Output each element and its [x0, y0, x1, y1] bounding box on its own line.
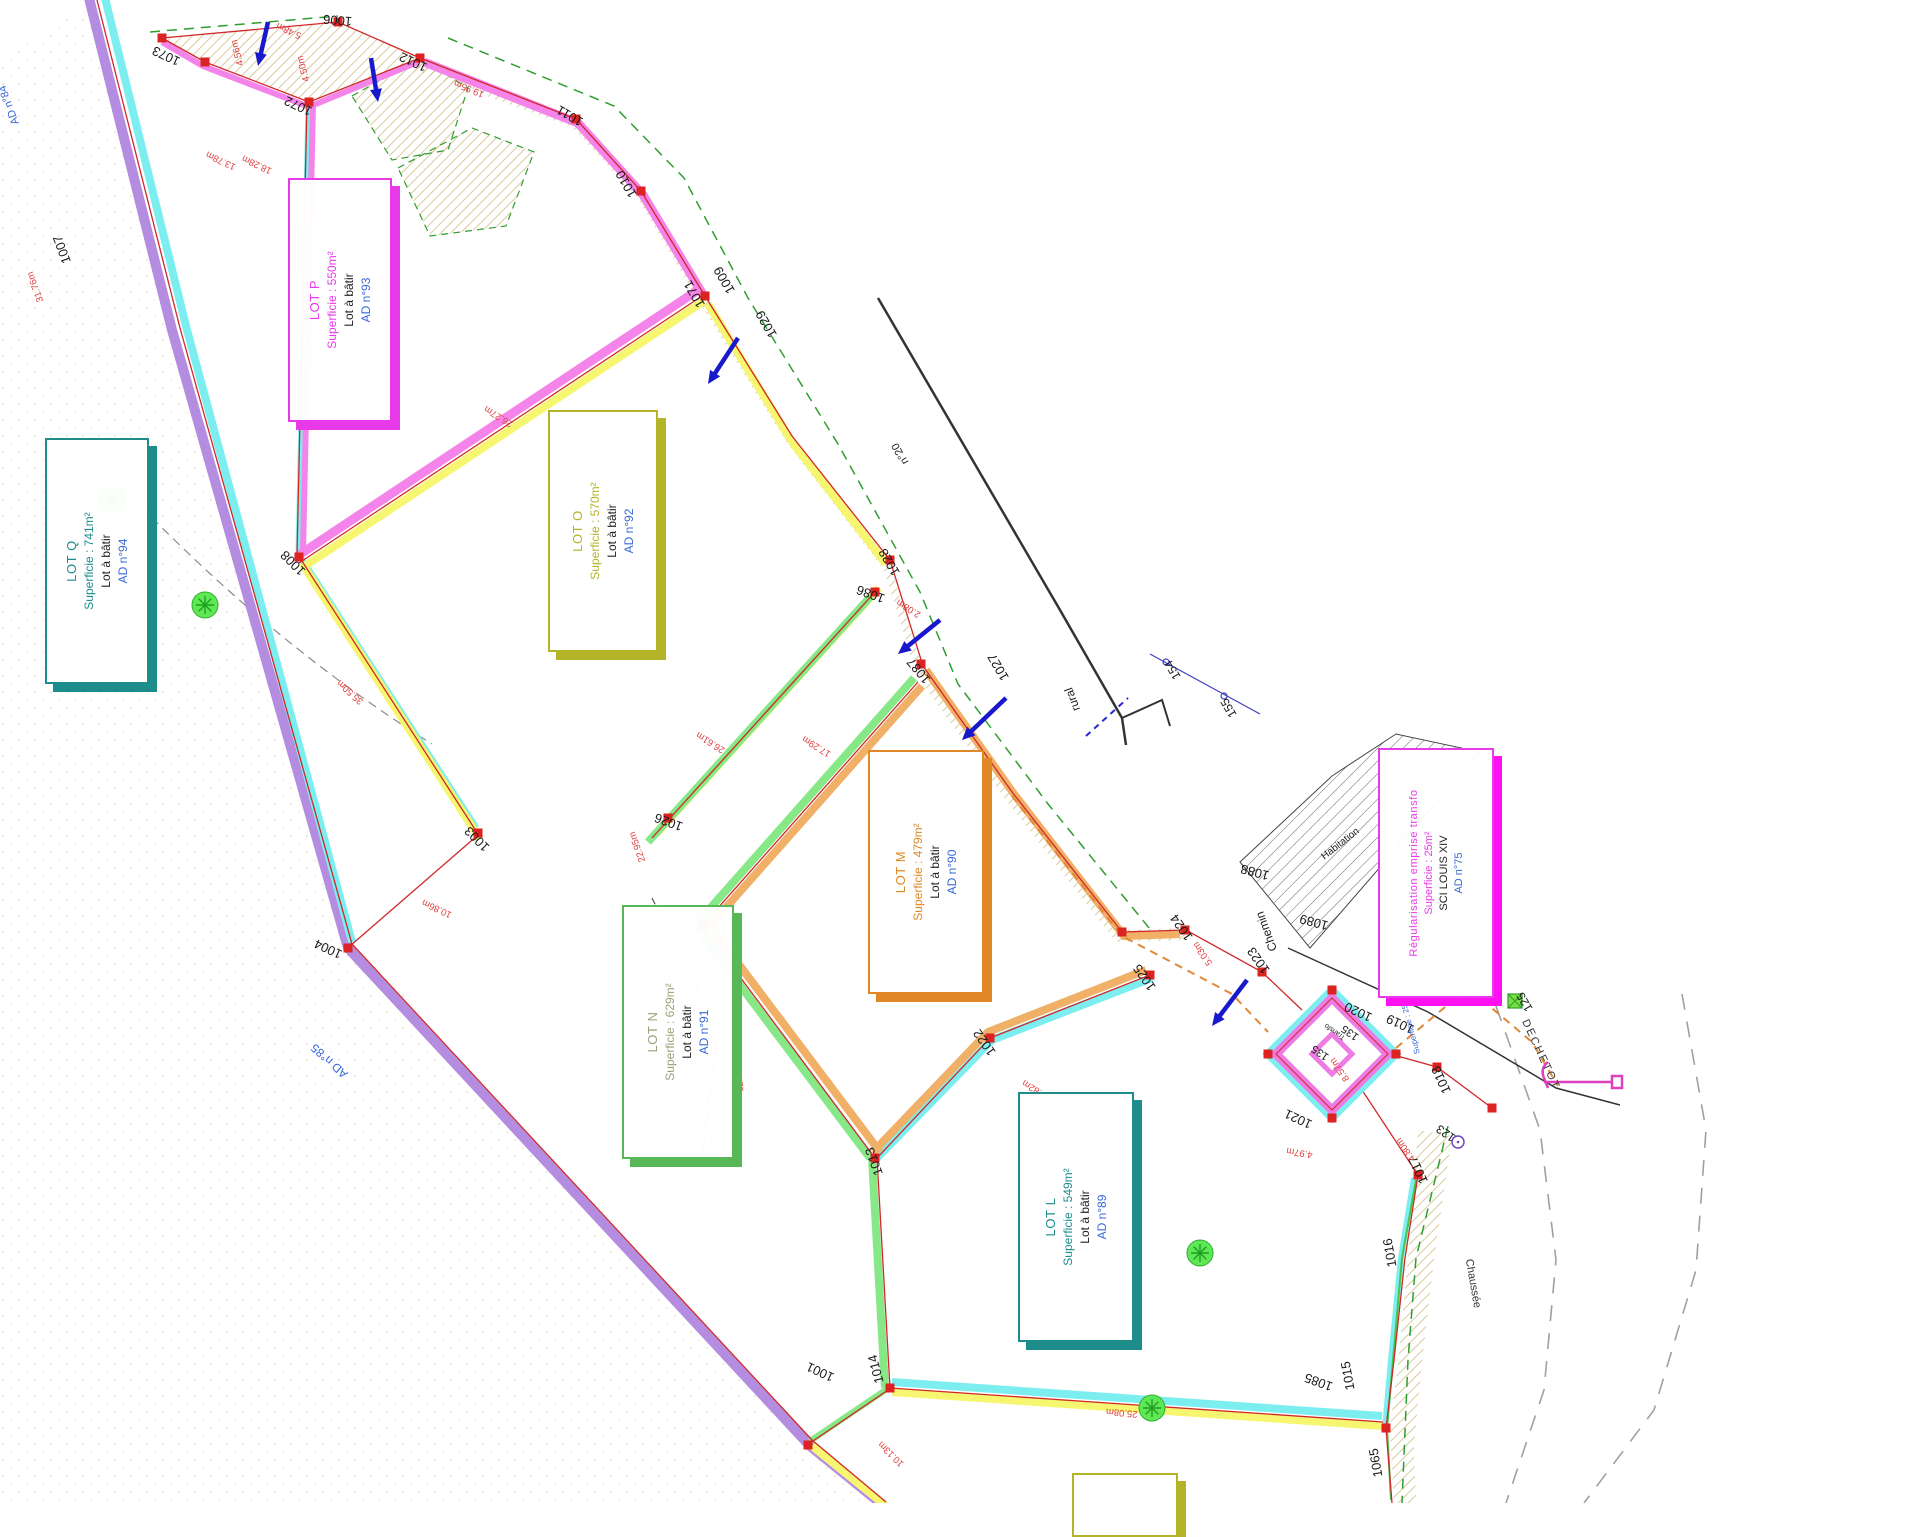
parcel-number-label: 125	[1513, 990, 1535, 1015]
lot-note: Lot à bâtir	[342, 273, 356, 326]
parcel-number-label: 1001	[804, 1359, 837, 1385]
lot-title: LOT P	[307, 280, 322, 320]
lot-superficie: Superficie : 629m²	[663, 983, 677, 1080]
lot-ref: AD n°89	[1095, 1195, 1109, 1240]
transfo-line3: SCI LOUIS XIV	[1438, 835, 1450, 910]
dimension-label: 4.97m	[1286, 1145, 1314, 1160]
lot-superficie: Superficie : 479m²	[911, 823, 925, 920]
corner-marker	[804, 1441, 813, 1450]
lot-p-label-box: LOT P Superficie : 550m² Lot à bâtir AD …	[288, 178, 392, 422]
flow-arrow-icon	[1217, 980, 1247, 1020]
dimension-label: 12.78m	[733, 1060, 747, 1093]
parcel-number-label: 1027	[984, 651, 1011, 684]
corner-marker	[1328, 986, 1337, 995]
lot-title: LOT Q	[64, 540, 79, 582]
flow-arrow-icon	[968, 698, 1006, 734]
parcel-number-label: 1016	[1380, 1237, 1400, 1268]
parcel-number-label: 154	[1161, 658, 1183, 683]
corner-marker	[1328, 1114, 1337, 1123]
dimension-label: 10.86m	[420, 897, 453, 920]
transfo-line2: Superficie : 25m²	[1423, 831, 1435, 914]
parcel-number-label: 1021	[1282, 1106, 1315, 1132]
parcel-number-label: 1085	[1302, 1370, 1334, 1394]
tree-icon	[1139, 1395, 1165, 1421]
parcel-number-label: 1018	[1428, 1064, 1454, 1097]
dimension-label: 18.28m	[240, 153, 273, 176]
corner-marker	[344, 944, 353, 953]
lot-m-label-box: LOT M Superficie : 479m² Lot à bâtir AD …	[868, 750, 984, 994]
context-label: DECHETOT	[1519, 1018, 1562, 1092]
dimension-label: 22.95m	[627, 830, 648, 864]
context-label: rural	[1062, 686, 1083, 713]
transfo-ref: AD n°75	[1453, 852, 1465, 893]
tree-icon	[1187, 1240, 1213, 1266]
parcel-number-label: 1065	[1366, 1447, 1386, 1478]
parcel-number-label: 1009	[710, 264, 737, 297]
dimension-label: 13.78m	[204, 149, 237, 172]
survey-plan: 1073107210061012101110101009107110291028…	[0, 0, 1920, 1503]
lot-q-label-box: LOT Q Superficie : 741m² Lot à bâtir AD …	[45, 438, 149, 684]
dimension-label: 4.80m	[1394, 1135, 1418, 1163]
corner-marker	[201, 58, 210, 67]
corner-marker	[1392, 1050, 1401, 1059]
tree-icon	[192, 592, 218, 618]
lot-note: Lot à bâtir	[928, 845, 942, 898]
lot-superficie: Superficie : 570m²	[588, 482, 602, 579]
lot-ref: AD n°94	[116, 539, 130, 584]
wall-lines	[878, 298, 1620, 1105]
parcel-number-label: 1015	[1338, 1360, 1358, 1391]
lot-l-label-box: LOT L Superficie : 549m² Lot à bâtir AD …	[1018, 1092, 1134, 1342]
lot-note: Lot à bâtir	[1078, 1190, 1092, 1243]
corner-marker	[1264, 1050, 1273, 1059]
dimension-label: 26.61m	[694, 729, 727, 755]
lot-title: LOT L	[1043, 1198, 1058, 1237]
transformer-square	[1268, 990, 1396, 1118]
lot-ref: AD n°92	[622, 509, 636, 554]
corner-marker	[886, 1384, 895, 1393]
context-label: n°20	[890, 441, 912, 467]
lot-ref: AD n°90	[945, 850, 959, 895]
lot-note: Lot à bâtir	[99, 534, 113, 587]
corner-marker	[1118, 928, 1127, 937]
dimension-label: 10.13m	[876, 1439, 906, 1469]
lot-superficie: Superficie : 741m²	[82, 512, 96, 609]
lot-n-label-box: LOT N Superficie : 629m² Lot à bâtir AD …	[622, 905, 734, 1159]
transfo-line1: Régularisation emprise transfo	[1408, 789, 1420, 956]
lot-superficie: Superficie : 550m²	[325, 251, 339, 348]
parcel-number-label: 1011	[554, 102, 586, 129]
parcel-number-label: 1086	[854, 582, 886, 606]
parcel-number-label: 155	[1217, 696, 1239, 721]
context-label: Chaussée	[1463, 1258, 1483, 1309]
lot-superficie: Superficie : 549m²	[1061, 1168, 1075, 1265]
transfo-label-box: Régularisation emprise transfo Superfici…	[1378, 748, 1494, 998]
dimension-label: 35.50m	[335, 677, 366, 706]
corner-marker	[1382, 1424, 1391, 1433]
lot-ref: AD n°91	[697, 1010, 711, 1055]
partial-lot-label-box	[1072, 1473, 1178, 1537]
parcel-number-label: 1006	[323, 12, 353, 29]
lot-o-label-box: LOT O Superficie : 570m² Lot à bâtir AD …	[548, 410, 658, 652]
lot-title: LOT M	[893, 851, 908, 894]
lot-note: Lot à bâtir	[605, 504, 619, 557]
corner-marker	[1488, 1104, 1497, 1113]
dimension-label: 17.29m	[800, 733, 833, 759]
lot-title: LOT N	[645, 1011, 660, 1052]
lot-title: LOT O	[570, 510, 585, 552]
lot-note: Lot à bâtir	[680, 1005, 694, 1058]
lot-ref: AD n°93	[359, 278, 373, 323]
corner-marker	[158, 34, 167, 43]
